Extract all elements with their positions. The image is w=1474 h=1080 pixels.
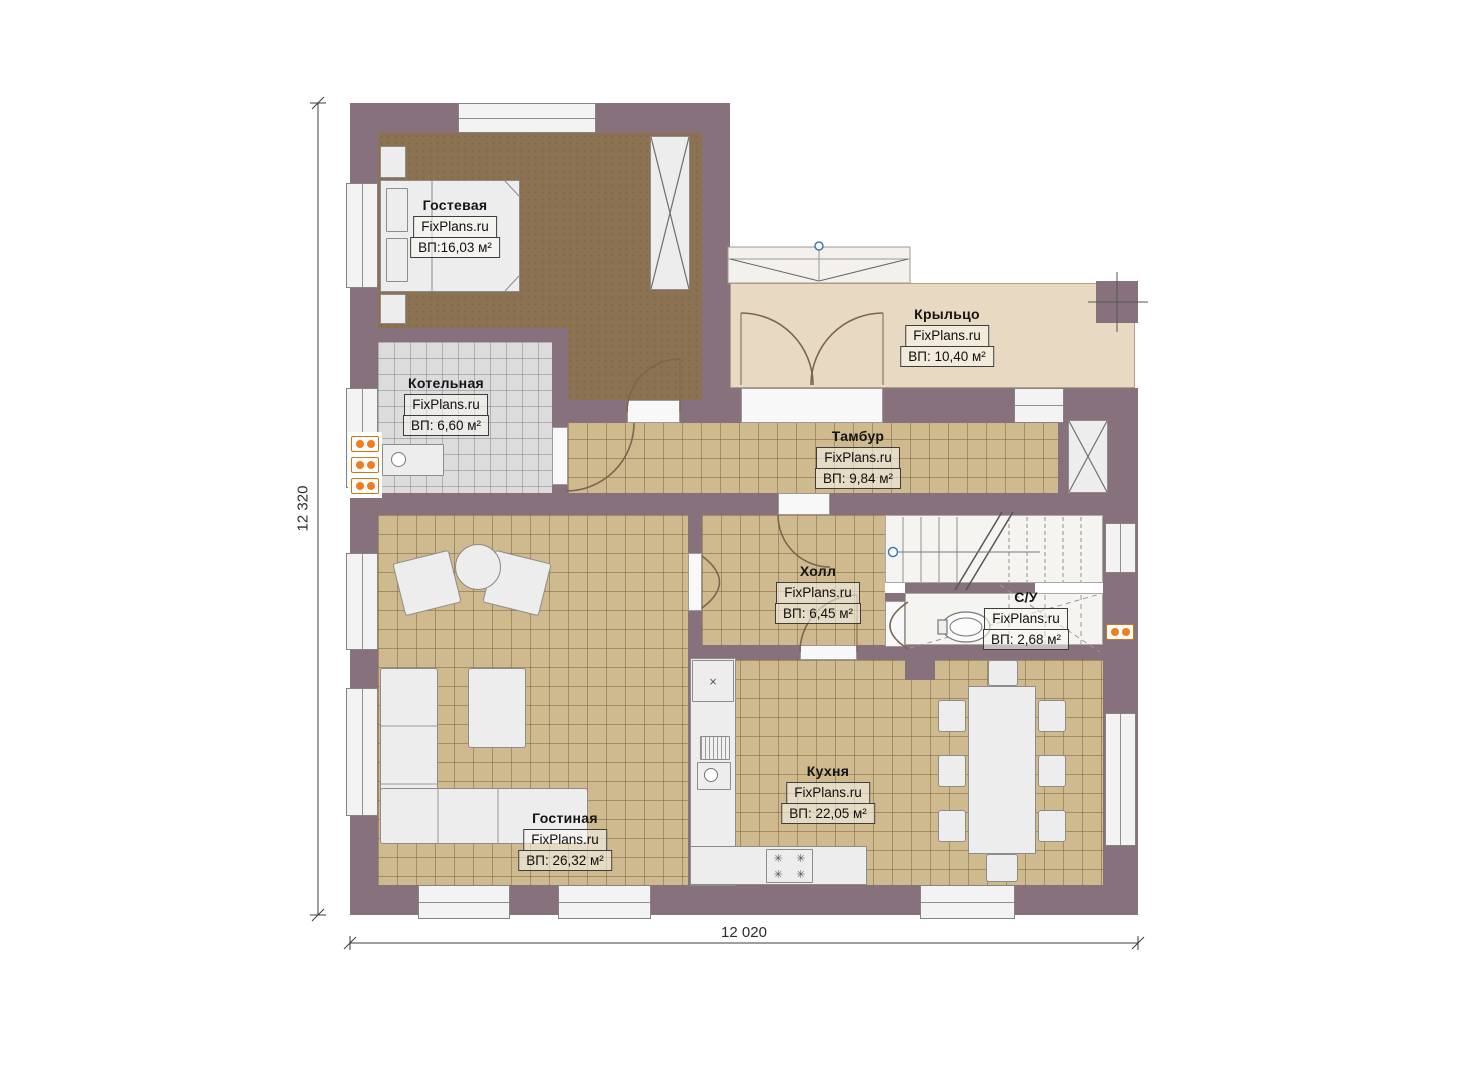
chair-bottom [986, 854, 1018, 882]
room-name: Крыльцо [914, 306, 980, 322]
room-label-wc: С/У FixPlans.ru ВП: 2,68 м² [983, 589, 1069, 650]
wardrobe-vestibule [1068, 420, 1108, 493]
dining-table [968, 686, 1036, 854]
hall-door-gap [778, 493, 830, 515]
radiator-boiler-1 [351, 436, 379, 452]
room-name: С/У [1014, 589, 1038, 605]
room-brand: FixPlans.ru [984, 608, 1068, 630]
window-right-kitchen [1105, 713, 1136, 846]
kitchen-door-gap [800, 645, 857, 660]
room-name: Гостиная [532, 810, 598, 826]
chair-left-2 [938, 755, 966, 787]
window-bottom-kitchen [920, 885, 1015, 919]
room-brand: FixPlans.ru [404, 394, 488, 416]
vestibule-floor [568, 420, 1058, 495]
guest-door-gap [627, 400, 680, 423]
living-door-gap [688, 553, 702, 611]
chair-left-1 [938, 700, 966, 732]
window-top-guest [458, 103, 596, 133]
room-label-vestibule: Тамбур FixPlans.ru ВП: 9,84 м² [815, 428, 901, 489]
room-label-guest: Гостевая FixPlans.ru ВП:16,03 м² [410, 197, 500, 258]
room-brand: FixPlans.ru [523, 829, 607, 851]
burner-3: ✳ [774, 868, 783, 881]
chair-left-3 [938, 810, 966, 842]
chair-right-2 [1038, 755, 1066, 787]
room-label-hall: Холл FixPlans.ru ВП: 6,45 м² [775, 563, 861, 624]
dimension-height: 12 320 [295, 464, 312, 554]
pillow-1 [386, 188, 408, 232]
wall-mid-east [830, 493, 1138, 515]
porch-canopy [728, 242, 910, 283]
entry-door-gap [741, 388, 883, 423]
floor-plan-canvas: × ✳ ✳ ✳ ✳ [0, 0, 1474, 1080]
room-area: ВП: 6,45 м² [775, 603, 861, 625]
radiator-boiler-2 [351, 457, 379, 473]
boiler-door-gap [552, 427, 568, 485]
side-table-round [455, 544, 501, 590]
wall-porch-bottom-a [730, 388, 741, 423]
room-area: ВП: 9,84 м² [815, 468, 901, 490]
wall-mid-west [350, 493, 778, 515]
nightstand-bottom [380, 294, 406, 324]
canopy-marker-icon [815, 242, 823, 250]
nightstand-top [380, 146, 406, 178]
chair-right-1 [1038, 700, 1066, 732]
room-name: Гостевая [423, 197, 488, 213]
radiator-boiler-3 [351, 478, 379, 494]
porch-column [1096, 281, 1138, 323]
room-brand: FixPlans.ru [816, 447, 900, 469]
bathroom-door-gap [885, 601, 905, 647]
room-brand: FixPlans.ru [413, 216, 497, 238]
wall-guest-right [702, 103, 730, 423]
wall-porch-bottom-b [883, 388, 1014, 423]
counter-sink-box: × [692, 660, 734, 702]
room-label-boiler: Котельная FixPlans.ru ВП: 6,60 м² [403, 375, 489, 436]
burner-1: ✳ [774, 852, 783, 865]
room-brand: FixPlans.ru [776, 582, 860, 604]
room-area: ВП: 10,40 м² [900, 346, 994, 368]
coffee-table [468, 668, 526, 748]
room-name: Холл [800, 563, 836, 579]
wardrobe-guest [650, 136, 690, 290]
chair-right-3 [1038, 810, 1066, 842]
window-right-stairs [1105, 523, 1136, 573]
room-area: ВП: 22,05 м² [781, 803, 875, 825]
radiator-bathroom [1106, 624, 1134, 640]
dimension-width: 12 020 [694, 924, 794, 941]
window-left-guest [346, 183, 378, 288]
staircase-area [885, 515, 1103, 583]
stove: ✳ ✳ ✳ ✳ [766, 849, 813, 883]
room-label-living: Гостиная FixPlans.ru ВП: 26,32 м² [518, 810, 612, 871]
burner-2: ✳ [796, 852, 805, 865]
dish-drainer [700, 736, 730, 760]
window-porch-vestibule [1014, 388, 1064, 423]
room-label-kitchen: Кухня FixPlans.ru ВП: 22,05 м² [781, 763, 875, 824]
pillow-2 [386, 238, 408, 282]
room-brand: FixPlans.ru [786, 782, 870, 804]
chair-top [988, 660, 1018, 686]
room-name: Тамбур [832, 428, 885, 444]
pillar-hall-kitchen [905, 645, 935, 680]
window-bottom-living-2 [558, 885, 651, 919]
wall-wardrobe-stub [1058, 418, 1068, 495]
room-name: Кухня [807, 763, 849, 779]
room-label-porch: Крыльцо FixPlans.ru ВП: 10,40 м² [900, 306, 994, 367]
burner-4: ✳ [796, 868, 805, 881]
room-area: ВП: 26,32 м² [518, 850, 612, 872]
room-name: Котельная [408, 375, 484, 391]
kitchen-sink-bowl [704, 768, 718, 782]
room-area: ВП: 2,68 м² [983, 629, 1069, 651]
room-area: ВП:16,03 м² [410, 237, 500, 259]
counter-sink-glyph: × [709, 674, 717, 689]
window-left-living-1 [346, 553, 378, 650]
window-left-living-2 [346, 688, 378, 816]
boiler-valve [391, 452, 406, 467]
wall-boiler-top [378, 328, 568, 342]
room-brand: FixPlans.ru [905, 325, 989, 347]
room-area: ВП: 6,60 м² [403, 415, 489, 437]
window-bottom-living-1 [418, 885, 510, 919]
